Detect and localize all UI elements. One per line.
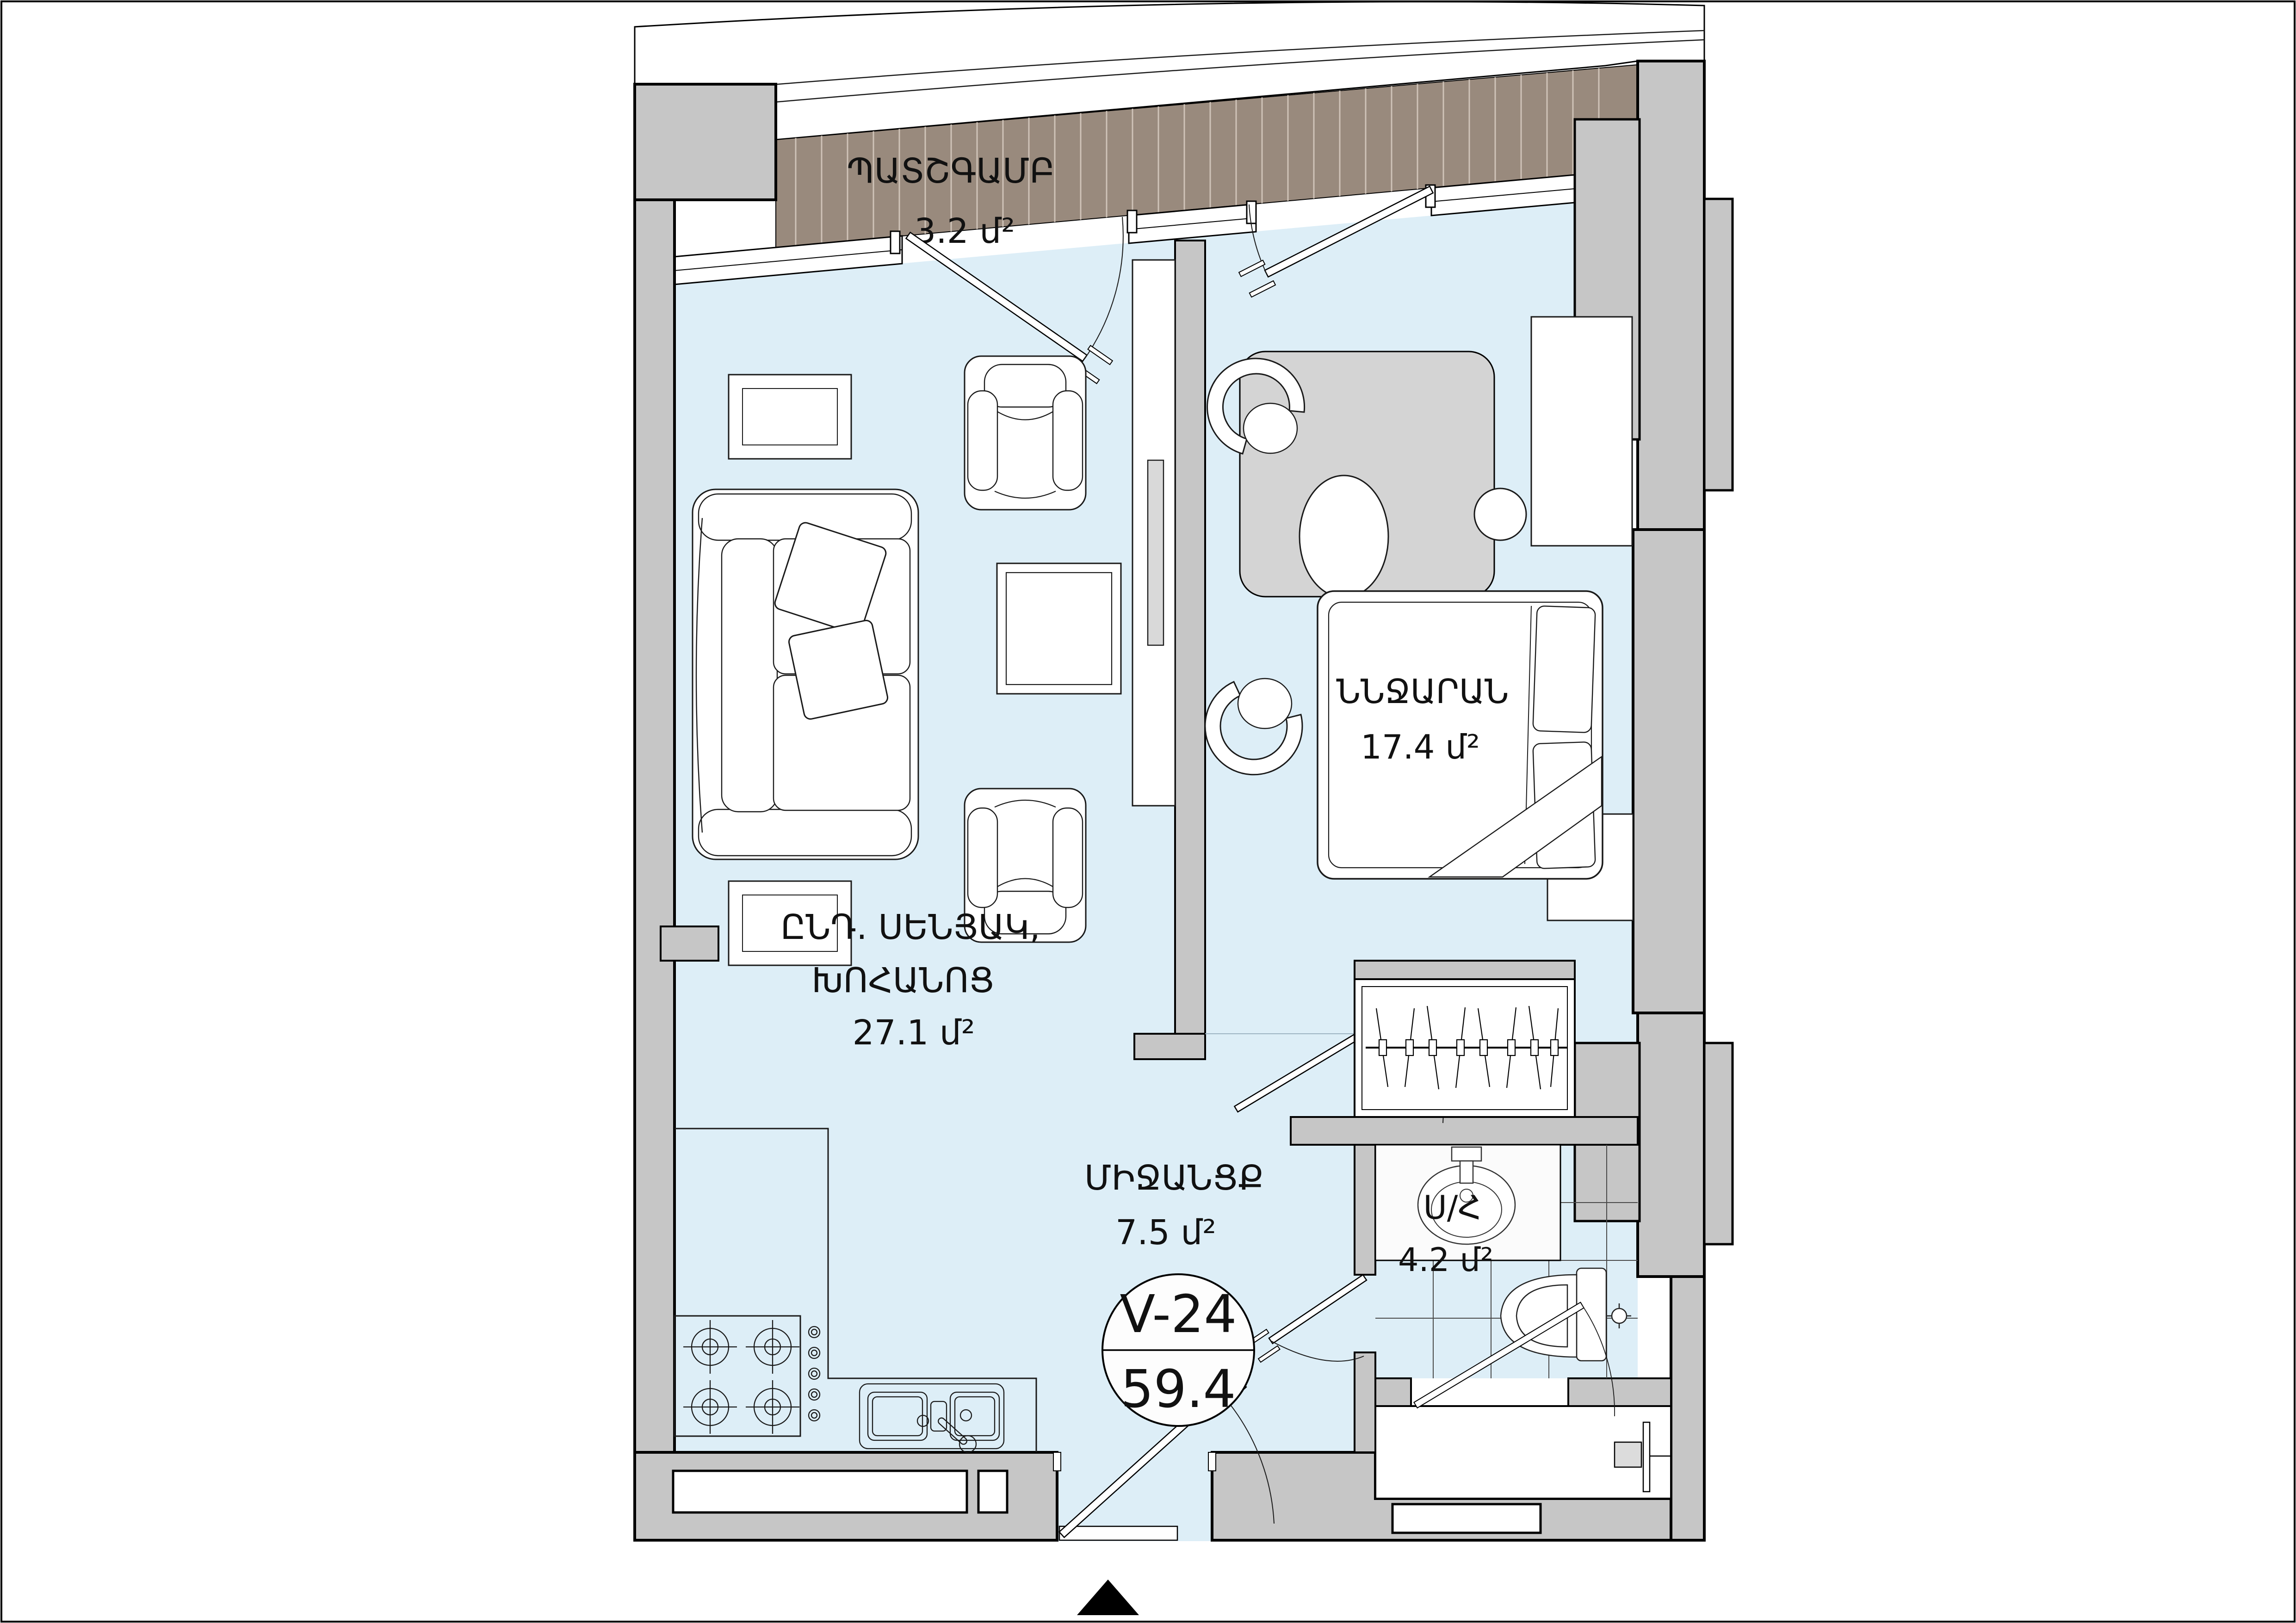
radiator-box [1615,1442,1641,1467]
pier-mid-right [1638,1013,1704,1277]
floor-plan-canvas: ՊԱՏՇԳԱՄԲ 3.2 մ² [0,0,2296,1623]
balcony-label: ՊԱՏՇԳԱՄԲ [847,151,1054,191]
pillow [1533,606,1595,733]
floor-plan-page: ՊԱՏՇԳԱՄԲ 3.2 մ² [0,0,2296,1623]
unit-number: V-24 [1120,1284,1237,1345]
bedroom-label: ՆՆՋԱՐԱՆ [1336,672,1509,711]
living-label-line2: ԽՈՀԱՆՈՑ [811,961,994,1000]
unit-total-area: 59.4 [1120,1359,1236,1419]
radiator-icon [1643,1422,1650,1492]
wall-left-stub [661,926,718,961]
wall-left [635,200,675,1540]
wall-bathroom-left-lower [1355,1352,1375,1452]
coffee-table [997,563,1121,694]
pier-top-right [1638,61,1704,530]
window-bottom-small [978,1471,1007,1512]
wall-bathroom-top [1291,1117,1638,1145]
wall-right-bedroom [1633,530,1704,1013]
service-room [1375,1406,1671,1499]
wall-divider-foot [1134,1034,1205,1059]
unit-badge: V-24 59.4 [1102,1274,1254,1426]
wall-wardrobe-top [1355,961,1575,979]
round-table [1300,475,1388,598]
wardrobe [1355,979,1575,1117]
desk [1531,317,1632,546]
pier-top-left [635,84,776,200]
stool [1474,488,1526,540]
wall-divider [1175,241,1205,1034]
wall-right-bottom [1671,1277,1704,1540]
pier-top-right-arm-right [1704,199,1733,490]
bathroom-area: 4.2 մ² [1398,1241,1493,1279]
window-bottom-right [1392,1504,1541,1533]
entrance-sill [1059,1526,1177,1540]
hallway-label: ՄԻՋԱՆՑՔ [1084,1158,1264,1198]
wall-shower-right [1568,1378,1671,1406]
tv-console [1133,260,1175,806]
wall-shower-left-nib [1375,1378,1411,1406]
wall-bathroom-left-upper [1355,1145,1375,1275]
throw-pillow [788,619,889,720]
living-area: 27.1 մ² [853,1013,975,1053]
armchair-top [965,356,1086,510]
window-bottom-long [673,1471,967,1512]
bedroom-area: 17.4 մ² [1361,728,1480,766]
tv-icon [1148,460,1163,645]
bathroom-label: Ս/Հ [1423,1189,1481,1227]
faucet-icon [1452,1147,1481,1161]
side-table-top [729,375,851,459]
sofa [693,489,918,859]
hallway-area: 7.5 մ² [1115,1213,1216,1253]
living-label-line1: ԸՆԴ. ՍԵՆՅԱԿ, [780,907,1040,947]
pier-mid-right-arm-right [1704,1043,1733,1244]
